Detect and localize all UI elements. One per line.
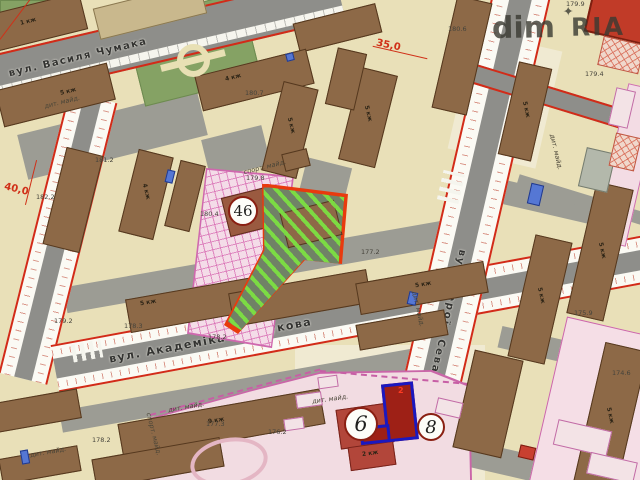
parcel-marker-8[interactable]: 8 — [417, 413, 445, 441]
marker-6-label: 6 — [354, 412, 367, 436]
elevation-label: 179.2 — [54, 317, 73, 325]
elevation-label: 179.8 — [246, 174, 265, 182]
elevation-label: 180.7 — [245, 89, 264, 97]
elevation-label: 180.6 — [448, 25, 467, 33]
elevation-label: 178.3 — [124, 322, 143, 330]
elevation-label: 176.2 — [268, 428, 287, 436]
watermark-dim: dim — [492, 10, 556, 46]
utility-box — [165, 169, 176, 184]
star-icon: ✦ — [563, 5, 576, 20]
marker-46-label: 46 — [233, 202, 252, 220]
area-label: дит. майд. — [548, 133, 564, 170]
elevation-label: 178.2 — [208, 333, 227, 341]
watermark: dim ✦RIA — [492, 9, 626, 46]
parcel-marker-46[interactable]: 46 — [228, 196, 258, 226]
watermark-ria-label: RIA — [571, 12, 625, 42]
elevation-label: 177.2 — [361, 248, 380, 256]
elevation-label: 179.4 — [585, 70, 604, 78]
elevation-label: 181.2 — [95, 156, 114, 164]
utility-box — [20, 449, 30, 464]
city-plan-map[interactable]: вул. Василя Чумака вул. Академіка Каблук… — [0, 0, 640, 480]
school-marker-6[interactable]: 6 — [344, 407, 378, 441]
road-width-35: 35,0 — [375, 38, 401, 54]
watermark-ria: ✦RIA — [571, 12, 625, 42]
building-2-number: 2 — [398, 386, 404, 395]
elevation-label: 175.9 — [574, 309, 593, 317]
elevation-label: 174.6 — [612, 369, 631, 377]
road-width-40: 40,0 — [3, 181, 30, 198]
marker-8-label: 8 — [425, 417, 436, 438]
elevation-label: 180.4 — [200, 210, 219, 218]
elevation-label: 182.2 — [36, 193, 55, 201]
elevation-label: 178.2 — [92, 436, 111, 444]
